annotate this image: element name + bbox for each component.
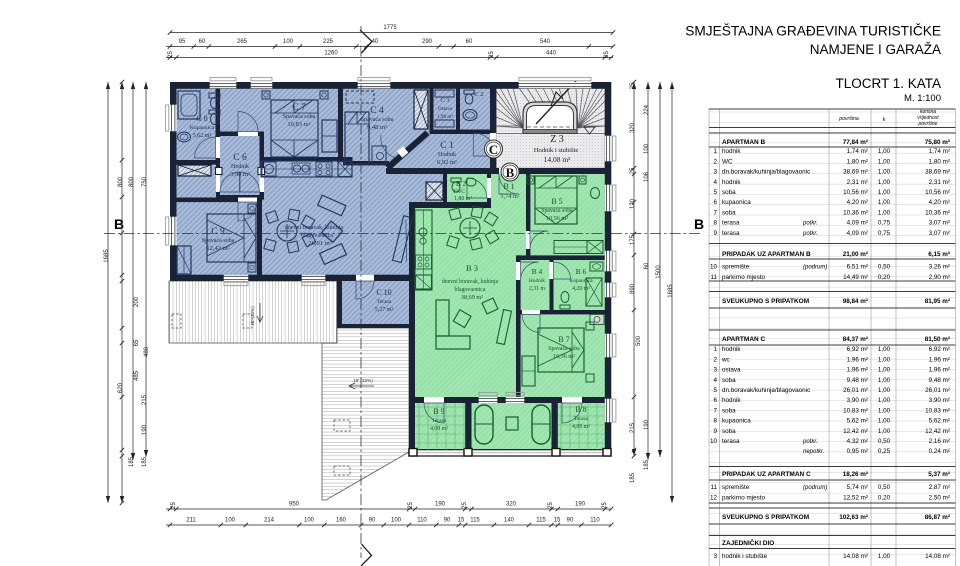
svg-text:10,56 m²: 10,56 m² <box>843 189 868 196</box>
svg-text:160: 160 <box>336 518 347 524</box>
svg-text:6,15 m²: 6,15 m² <box>928 251 950 258</box>
svg-text:86,87 m²: 86,87 m² <box>925 514 950 521</box>
svg-text:dn.boravak/kuhinja/blagovaonic: dn.boravak/kuhinja/blagovaonic <box>722 169 810 176</box>
svg-text:1,74 m²: 1,74 m² <box>847 148 868 155</box>
svg-text:120: 120 <box>630 198 636 209</box>
svg-text:1,74 m²: 1,74 m² <box>929 148 950 155</box>
svg-text:25: 25 <box>489 51 495 58</box>
svg-text:200: 200 <box>134 296 140 307</box>
svg-text:25: 25 <box>462 502 468 509</box>
svg-text:potkr.: potkr. <box>802 231 818 237</box>
svg-text:18' (32%): 18' (32%) <box>250 306 255 326</box>
svg-text:9,48 m²: 9,48 m² <box>847 377 868 384</box>
svg-text:3,07 m²: 3,07 m² <box>929 230 950 237</box>
svg-text:175: 175 <box>630 234 636 245</box>
svg-text:190: 190 <box>644 419 650 430</box>
svg-text:1,00: 1,00 <box>878 407 891 414</box>
svg-text:3,07 m²: 3,07 m² <box>929 220 950 227</box>
svg-text:9: 9 <box>713 428 717 435</box>
svg-text:2,31 m²: 2,31 m² <box>929 179 950 186</box>
svg-text:SVEUKUPNO S PRIPATKOM: SVEUKUPNO S PRIPATKOM <box>722 298 809 305</box>
svg-text:C 8: C 8 <box>196 114 207 123</box>
svg-text:95: 95 <box>179 39 186 45</box>
svg-text:40: 40 <box>372 39 379 45</box>
svg-text:115: 115 <box>470 518 480 524</box>
svg-text:38,69 m²: 38,69 m² <box>925 169 950 176</box>
svg-text:185: 185 <box>644 459 650 470</box>
svg-text:90: 90 <box>369 518 376 524</box>
svg-text:65: 65 <box>134 339 140 346</box>
svg-text:98,84 m²: 98,84 m² <box>843 298 868 305</box>
svg-text:soba: soba <box>722 189 736 196</box>
svg-text:kupaonica: kupaonica <box>722 199 751 206</box>
svg-text:10,56 m²: 10,56 m² <box>925 189 950 196</box>
svg-text:81,95 m²: 81,95 m² <box>925 298 950 305</box>
svg-text:26,01 m²: 26,01 m² <box>308 240 331 247</box>
svg-text:blagovaonica: blagovaonica <box>455 287 486 293</box>
svg-text:spremište: spremište <box>722 484 750 491</box>
svg-text:6,92 m²: 6,92 m² <box>437 159 457 166</box>
svg-text:1,80 m²: 1,80 m² <box>929 158 950 165</box>
svg-text:parkirno mjesto: parkirno mjesto <box>722 274 766 281</box>
svg-text:PRIPADAK UZ APARTMAN C: PRIPADAK UZ APARTMAN C <box>722 471 811 478</box>
svg-text:4,09 m²: 4,09 m² <box>572 424 590 430</box>
svg-text:1,00: 1,00 <box>878 553 891 560</box>
svg-text:hodnik: hodnik <box>722 346 741 353</box>
svg-text:B 5: B 5 <box>551 197 562 206</box>
svg-text:14,49 m²: 14,49 m² <box>843 274 868 281</box>
svg-text:25: 25 <box>171 502 177 509</box>
svg-text:(podrum): (podrum) <box>803 265 827 271</box>
svg-text:C 3: C 3 <box>440 97 449 104</box>
svg-text:1,00: 1,00 <box>878 367 891 374</box>
svg-text:115: 115 <box>536 518 546 524</box>
svg-text:106: 106 <box>644 171 650 182</box>
svg-text:5,62 m²: 5,62 m² <box>929 418 950 425</box>
svg-text:10: 10 <box>710 438 718 445</box>
svg-text:90: 90 <box>567 518 574 524</box>
svg-text:dnevni boravak, kuhinja: dnevni boravak, kuhinja <box>442 279 499 285</box>
svg-text:2,16 m²: 2,16 m² <box>929 438 950 445</box>
svg-text:1,74 m²: 1,74 m² <box>500 193 519 200</box>
svg-text:10,83 m²: 10,83 m² <box>287 121 310 128</box>
svg-text:APARTMAN C: APARTMAN C <box>722 336 766 343</box>
svg-text:1,96 m²: 1,96 m² <box>929 356 950 363</box>
svg-text:B 1: B 1 <box>503 182 514 191</box>
svg-text:4,32 m²: 4,32 m² <box>847 438 868 445</box>
svg-text:26,01 m²: 26,01 m² <box>925 387 950 394</box>
svg-text:224: 224 <box>644 104 650 115</box>
svg-text:1,00: 1,00 <box>878 377 891 384</box>
svg-text:6: 6 <box>713 199 717 206</box>
svg-text:3,90 m²: 3,90 m² <box>847 397 868 404</box>
svg-text:90: 90 <box>444 518 451 524</box>
svg-text:potkr.: potkr. <box>802 439 818 445</box>
svg-text:60: 60 <box>466 39 473 45</box>
svg-text:ostava: ostava <box>722 367 741 374</box>
svg-text:0,75: 0,75 <box>878 220 891 227</box>
svg-text:B 2: B 2 <box>456 180 466 188</box>
svg-text:1,00: 1,00 <box>878 148 891 155</box>
svg-text:18' (32%): 18' (32%) <box>353 378 373 383</box>
svg-text:Terasa: Terasa <box>432 418 447 424</box>
svg-text:440: 440 <box>546 51 557 57</box>
svg-text:110: 110 <box>590 518 600 524</box>
svg-text:C 4: C 4 <box>370 106 384 116</box>
svg-text:B 4: B 4 <box>532 267 543 276</box>
svg-text:1,96 m²: 1,96 m² <box>929 367 950 374</box>
svg-text:Terasa: Terasa <box>574 416 589 422</box>
svg-text:4: 4 <box>713 377 717 384</box>
svg-text:320: 320 <box>630 122 636 133</box>
svg-text:B 3: B 3 <box>466 263 478 273</box>
svg-text:SMJEŠTAJNA GRAĐEVINA TURISTIČK: SMJEŠTAJNA GRAĐEVINA TURISTIČKE <box>685 24 941 39</box>
svg-text:75,80 m²: 75,80 m² <box>925 139 950 146</box>
svg-text:Hodnik: Hodnik <box>438 152 456 158</box>
svg-text:M. 1:100: M. 1:100 <box>904 93 941 104</box>
svg-text:1,00: 1,00 <box>878 158 891 165</box>
svg-text:B 8: B 8 <box>575 405 586 414</box>
svg-text:5,62 m²: 5,62 m² <box>193 133 212 139</box>
svg-text:2: 2 <box>713 158 717 165</box>
svg-text:9,48 m²: 9,48 m² <box>367 124 387 131</box>
svg-text:60: 60 <box>644 262 650 269</box>
svg-text:APARTMAN B: APARTMAN B <box>722 139 766 146</box>
svg-text:C: C <box>489 142 498 157</box>
svg-text:2: 2 <box>713 356 717 363</box>
svg-text:0,24 m²: 0,24 m² <box>929 448 950 455</box>
svg-text:8: 8 <box>713 220 717 227</box>
svg-text:Terasa: Terasa <box>377 299 392 305</box>
svg-text:1,00: 1,00 <box>878 179 891 186</box>
svg-text:Kupaonica: Kupaonica <box>190 125 215 131</box>
svg-text:10,83 m²: 10,83 m² <box>925 407 950 414</box>
svg-text:Spavaća soba: Spavaća soba <box>541 208 573 214</box>
svg-text:površine: površine <box>918 121 938 127</box>
svg-text:6,92 m²: 6,92 m² <box>929 346 950 353</box>
svg-text:C 2: C 2 <box>474 91 483 98</box>
svg-text:soba: soba <box>722 377 736 384</box>
svg-text:290: 290 <box>422 39 433 45</box>
svg-text:320: 320 <box>506 502 517 508</box>
svg-text:nepotkr.: nepotkr. <box>803 449 824 455</box>
svg-text:6,92 m²: 6,92 m² <box>847 346 868 353</box>
svg-text:100: 100 <box>283 39 294 45</box>
svg-text:102,63 m²: 102,63 m² <box>839 514 868 521</box>
svg-text:6: 6 <box>713 397 717 404</box>
svg-text:hodnik: hodnik <box>722 148 741 155</box>
svg-text:1685: 1685 <box>668 284 674 298</box>
svg-text:7: 7 <box>713 209 717 216</box>
svg-text:blagovaonica: blagovaonica <box>301 233 333 239</box>
svg-text:PRIPADAK UZ APARTMAN B: PRIPADAK UZ APARTMAN B <box>722 251 811 258</box>
svg-text:(podrum): (podrum) <box>803 485 827 491</box>
svg-text:750: 750 <box>142 176 148 187</box>
svg-text:B 6: B 6 <box>576 267 587 276</box>
svg-text:4,20 m²: 4,20 m² <box>847 199 868 206</box>
svg-text:Hodnik: Hodnik <box>529 278 545 284</box>
svg-text:950: 950 <box>289 502 300 508</box>
svg-text:k: k <box>883 117 886 123</box>
svg-text:2,90 m²: 2,90 m² <box>929 274 950 281</box>
svg-text:14,08 m²: 14,08 m² <box>925 553 950 560</box>
svg-text:1,00: 1,00 <box>878 346 891 353</box>
svg-text:Spavaća soba: Spavaća soba <box>548 346 580 352</box>
svg-text:parkirno mjesto: parkirno mjesto <box>722 494 766 501</box>
svg-text:12: 12 <box>710 494 718 501</box>
svg-text:4,09 m²: 4,09 m² <box>847 220 868 227</box>
svg-text:B: B <box>506 165 515 180</box>
svg-text:dn.boravak/kuhinja/blagovaonic: dn.boravak/kuhinja/blagovaonic <box>722 387 810 394</box>
svg-text:3,26 m²: 3,26 m² <box>929 264 950 271</box>
svg-text:9,48 m²: 9,48 m² <box>929 377 950 384</box>
svg-text:1,00: 1,00 <box>878 387 891 394</box>
svg-text:4,09 m²: 4,09 m² <box>847 230 868 237</box>
svg-text:Z 3: Z 3 <box>550 134 564 145</box>
svg-text:6,51 m²: 6,51 m² <box>847 264 868 271</box>
svg-text:25: 25 <box>408 502 414 509</box>
svg-text:15: 15 <box>554 518 561 524</box>
svg-text:11: 11 <box>710 484 717 491</box>
svg-text:5,62 m²: 5,62 m² <box>847 418 868 425</box>
svg-text:800: 800 <box>129 176 135 187</box>
svg-text:TWC: TWC <box>453 189 466 195</box>
svg-text:površina: površina <box>838 116 859 122</box>
svg-text:4: 4 <box>713 179 717 186</box>
svg-text:0,20: 0,20 <box>878 274 891 281</box>
svg-text:81,50 m²: 81,50 m² <box>925 336 950 343</box>
svg-text:190: 190 <box>435 502 446 508</box>
svg-text:NAMJENE I GARAŽA: NAMJENE I GARAŽA <box>810 42 941 57</box>
svg-text:1,80 m²: 1,80 m² <box>454 196 472 202</box>
svg-text:SVEUKUPNO S PRIPATKOM: SVEUKUPNO S PRIPATKOM <box>722 514 809 521</box>
svg-text:5,37 m²: 5,37 m² <box>928 471 950 478</box>
svg-text:0,20: 0,20 <box>878 494 891 501</box>
svg-text:1775: 1775 <box>383 25 397 31</box>
svg-text:3: 3 <box>713 169 717 176</box>
svg-text:4,20 m²: 4,20 m² <box>929 199 950 206</box>
svg-text:1,00: 1,00 <box>878 418 891 425</box>
svg-text:215: 215 <box>630 422 636 433</box>
svg-text:terasa: terasa <box>722 230 740 237</box>
svg-text:WC: WC <box>722 158 733 165</box>
svg-text:9: 9 <box>713 230 717 237</box>
svg-text:C 7: C 7 <box>292 103 306 113</box>
svg-text:C 9: C 9 <box>211 227 225 237</box>
svg-text:890: 890 <box>630 283 636 294</box>
svg-text:265: 265 <box>237 39 248 45</box>
svg-text:soba: soba <box>722 407 736 414</box>
svg-text:1260: 1260 <box>324 51 338 57</box>
svg-text:C 10: C 10 <box>376 288 391 297</box>
svg-text:1500: 1500 <box>656 265 662 279</box>
svg-text:77,84 m²: 77,84 m² <box>843 139 868 146</box>
svg-text:soba: soba <box>722 428 736 435</box>
svg-text:480: 480 <box>144 346 150 357</box>
svg-text:1,96 m²: 1,96 m² <box>847 356 868 363</box>
svg-text:Spavaća soba: Spavaća soba <box>202 238 235 244</box>
svg-text:0,50: 0,50 <box>878 438 891 445</box>
svg-text:211: 211 <box>186 518 196 524</box>
svg-text:Kupaonica: Kupaonica <box>569 278 593 284</box>
svg-text:1: 1 <box>713 346 717 353</box>
svg-text:60: 60 <box>199 39 206 45</box>
svg-text:TLOCRT 1. KATA: TLOCRT 1. KATA <box>835 76 941 91</box>
svg-text:26,01 m²: 26,01 m² <box>843 387 868 394</box>
svg-text:3: 3 <box>713 553 717 560</box>
svg-text:10,36 m²: 10,36 m² <box>553 353 575 360</box>
svg-text:18,26 m²: 18,26 m² <box>843 471 868 478</box>
svg-text:10,56 m²: 10,56 m² <box>546 215 568 222</box>
svg-text:800: 800 <box>118 176 124 187</box>
svg-text:1,00: 1,00 <box>878 428 891 435</box>
svg-text:hodnik i stubište: hodnik i stubište <box>722 553 768 560</box>
svg-text:4,09 m²: 4,09 m² <box>430 426 448 432</box>
svg-text:540: 540 <box>540 39 551 45</box>
svg-text:3: 3 <box>713 367 717 374</box>
svg-text:10,36 m²: 10,36 m² <box>925 209 950 216</box>
svg-text:Hodnik i stubište: Hodnik i stubište <box>534 147 579 154</box>
svg-text:kupaonica: kupaonica <box>722 418 751 425</box>
svg-text:100: 100 <box>391 518 402 524</box>
svg-text:0,50: 0,50 <box>878 264 891 271</box>
svg-text:1: 1 <box>713 148 717 155</box>
svg-text:0,50: 0,50 <box>878 484 891 491</box>
svg-text:12,42 m²: 12,42 m² <box>206 245 229 252</box>
svg-text:1,98 m²: 1,98 m² <box>437 114 453 120</box>
svg-text:1,00: 1,00 <box>878 397 891 404</box>
svg-text:terasa: terasa <box>722 220 740 227</box>
svg-text:C 6: C 6 <box>233 153 247 163</box>
svg-text:38,69 m²: 38,69 m² <box>843 169 868 176</box>
svg-text:100: 100 <box>644 143 650 154</box>
svg-text:3,90 m²: 3,90 m² <box>929 397 950 404</box>
svg-text:25: 25 <box>548 502 554 509</box>
svg-text:wc: wc <box>721 356 730 363</box>
svg-text:5: 5 <box>713 189 717 196</box>
svg-text:0,75: 0,75 <box>878 230 891 237</box>
svg-text:84,37 m²: 84,37 m² <box>843 336 868 343</box>
svg-text:C 1: C 1 <box>440 141 454 151</box>
svg-text:10: 10 <box>710 264 718 271</box>
svg-text:1,00: 1,00 <box>878 169 891 176</box>
svg-text:225: 225 <box>323 39 334 45</box>
svg-text:1685: 1685 <box>104 249 110 263</box>
svg-text:140: 140 <box>504 518 515 524</box>
svg-text:1,00: 1,00 <box>878 356 891 363</box>
svg-text:215: 215 <box>142 394 148 405</box>
svg-text:1,96 m²: 1,96 m² <box>847 367 868 374</box>
svg-text:15: 15 <box>458 518 465 524</box>
svg-text:185: 185 <box>142 456 148 467</box>
svg-text:terasa: terasa <box>722 438 740 445</box>
svg-text:5: 5 <box>713 387 717 394</box>
svg-text:2,31 m²: 2,31 m² <box>847 179 868 186</box>
svg-text:14,08 m²: 14,08 m² <box>544 155 572 164</box>
svg-text:2,31 m: 2,31 m <box>529 286 546 292</box>
svg-text:spremište: spremište <box>722 264 750 271</box>
svg-text:B 7: B 7 <box>558 335 569 344</box>
svg-text:185: 185 <box>129 456 135 467</box>
svg-text:potkr.: potkr. <box>802 221 818 227</box>
svg-text:12,42 m²: 12,42 m² <box>925 428 950 435</box>
svg-text:11: 11 <box>710 274 717 281</box>
svg-text:4,20 m²: 4,20 m² <box>572 286 590 292</box>
svg-text:hodnik: hodnik <box>722 179 741 186</box>
svg-text:1,00: 1,00 <box>878 209 891 216</box>
svg-text:190: 190 <box>575 502 586 508</box>
svg-text:5,74 m²: 5,74 m² <box>847 484 868 491</box>
svg-text:100: 100 <box>225 518 236 524</box>
svg-text:14,08 m²: 14,08 m² <box>843 553 868 560</box>
svg-text:Spavaća soba: Spavaća soba <box>361 117 394 123</box>
svg-text:Spavaća soba: Spavaća soba <box>283 114 316 120</box>
svg-text:2,87 m²: 2,87 m² <box>929 484 950 491</box>
svg-text:5,27 m²: 5,27 m² <box>375 307 394 313</box>
svg-text:3,90 m²: 3,90 m² <box>230 171 250 178</box>
svg-text:25: 25 <box>602 502 608 509</box>
svg-text:12,52 m²: 12,52 m² <box>843 494 868 501</box>
svg-text:Ostava: Ostava <box>438 107 453 112</box>
svg-text:485: 485 <box>134 370 140 381</box>
svg-text:ZAJEDNIČKI DIO: ZAJEDNIČKI DIO <box>722 538 774 547</box>
svg-text:hodnik: hodnik <box>722 397 741 404</box>
svg-text:38,69 m²: 38,69 m² <box>461 294 483 301</box>
svg-text:7: 7 <box>713 407 717 414</box>
svg-text:1,00: 1,00 <box>878 199 891 206</box>
svg-text:214: 214 <box>264 518 275 524</box>
svg-text:0,95 m²: 0,95 m² <box>847 448 868 455</box>
svg-text:110: 110 <box>417 518 427 524</box>
svg-text:10,83 m²: 10,83 m² <box>843 407 868 414</box>
svg-text:B 9: B 9 <box>433 407 444 416</box>
svg-text:190: 190 <box>142 424 148 435</box>
svg-text:0,25: 0,25 <box>878 448 891 455</box>
svg-text:100: 100 <box>304 518 315 524</box>
svg-text:500: 500 <box>636 335 642 346</box>
svg-text:21,00 m²: 21,00 m² <box>843 251 868 258</box>
svg-text:dnevni boravak, kuhinja: dnevni boravak, kuhinja <box>285 225 343 231</box>
svg-text:620: 620 <box>118 382 124 393</box>
svg-text:2,50 m²: 2,50 m² <box>929 494 950 501</box>
svg-text:1,00: 1,00 <box>878 189 891 196</box>
svg-text:25: 25 <box>604 51 610 58</box>
svg-text:8: 8 <box>713 418 717 425</box>
svg-text:185: 185 <box>630 472 636 483</box>
svg-text:12,42 m²: 12,42 m² <box>843 428 868 435</box>
svg-text:Hodnik: Hodnik <box>231 164 249 170</box>
svg-text:25: 25 <box>168 51 174 58</box>
svg-text:B: B <box>114 216 124 232</box>
svg-text:10,36 m²: 10,36 m² <box>843 209 868 216</box>
svg-text:1,80 m²: 1,80 m² <box>847 158 868 165</box>
svg-text:soba: soba <box>722 209 736 216</box>
svg-text:B: B <box>694 216 704 232</box>
